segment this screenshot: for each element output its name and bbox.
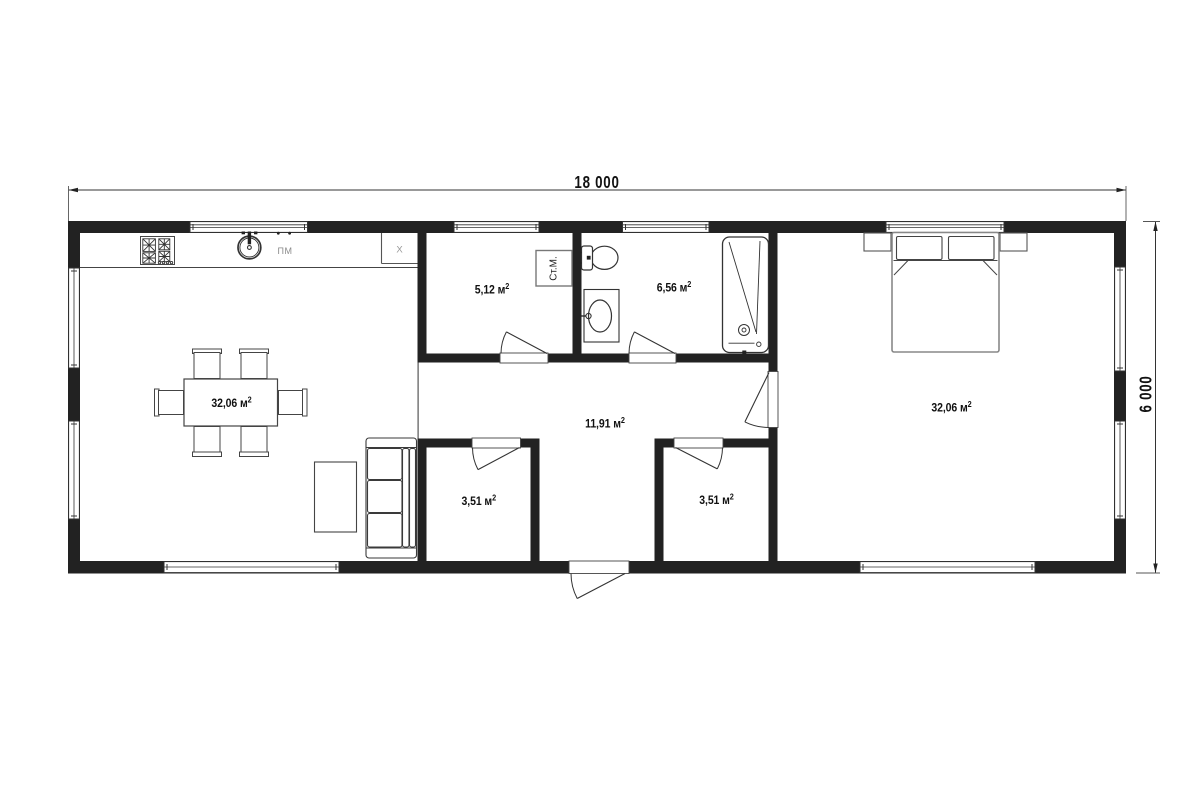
svg-text:32,06 м2: 32,06 м2 (211, 395, 252, 410)
svg-text:ПМ: ПМ (278, 246, 293, 256)
svg-text:X: X (396, 245, 403, 256)
svg-text:6,56 м2: 6,56 м2 (657, 279, 692, 294)
svg-text:11,91 м2: 11,91 м2 (585, 415, 625, 430)
svg-text:6 000: 6 000 (1137, 375, 1156, 412)
svg-text:Ст.М.: Ст.М. (549, 256, 560, 281)
svg-text:3,51 м2: 3,51 м2 (462, 493, 497, 508)
svg-text:5,12 м2: 5,12 м2 (475, 281, 510, 296)
svg-text:18 000: 18 000 (574, 173, 619, 192)
svg-text:3,51 м2: 3,51 м2 (699, 492, 734, 507)
svg-text:32,06 м2: 32,06 м2 (931, 399, 972, 414)
